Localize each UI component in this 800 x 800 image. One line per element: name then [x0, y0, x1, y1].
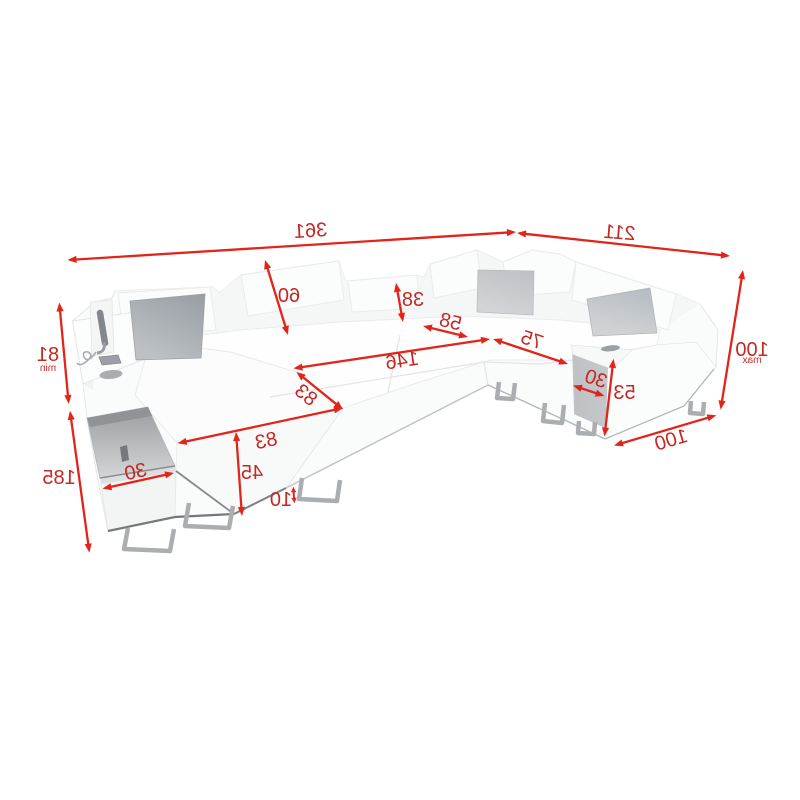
svg-text:100: 100 [652, 425, 690, 456]
svg-text:10: 10 [270, 489, 292, 511]
svg-text:185: 185 [42, 467, 75, 489]
svg-text:38: 38 [402, 289, 424, 311]
svg-text:83: 83 [253, 428, 279, 454]
svg-text:60: 60 [278, 285, 300, 307]
svg-text:30: 30 [123, 459, 149, 485]
svg-text:min: min [40, 363, 56, 374]
svg-text:361: 361 [293, 219, 328, 243]
svg-text:45: 45 [241, 462, 263, 484]
svg-text:max: max [743, 355, 762, 366]
svg-text:211: 211 [603, 221, 637, 245]
svg-text:53: 53 [613, 382, 635, 404]
